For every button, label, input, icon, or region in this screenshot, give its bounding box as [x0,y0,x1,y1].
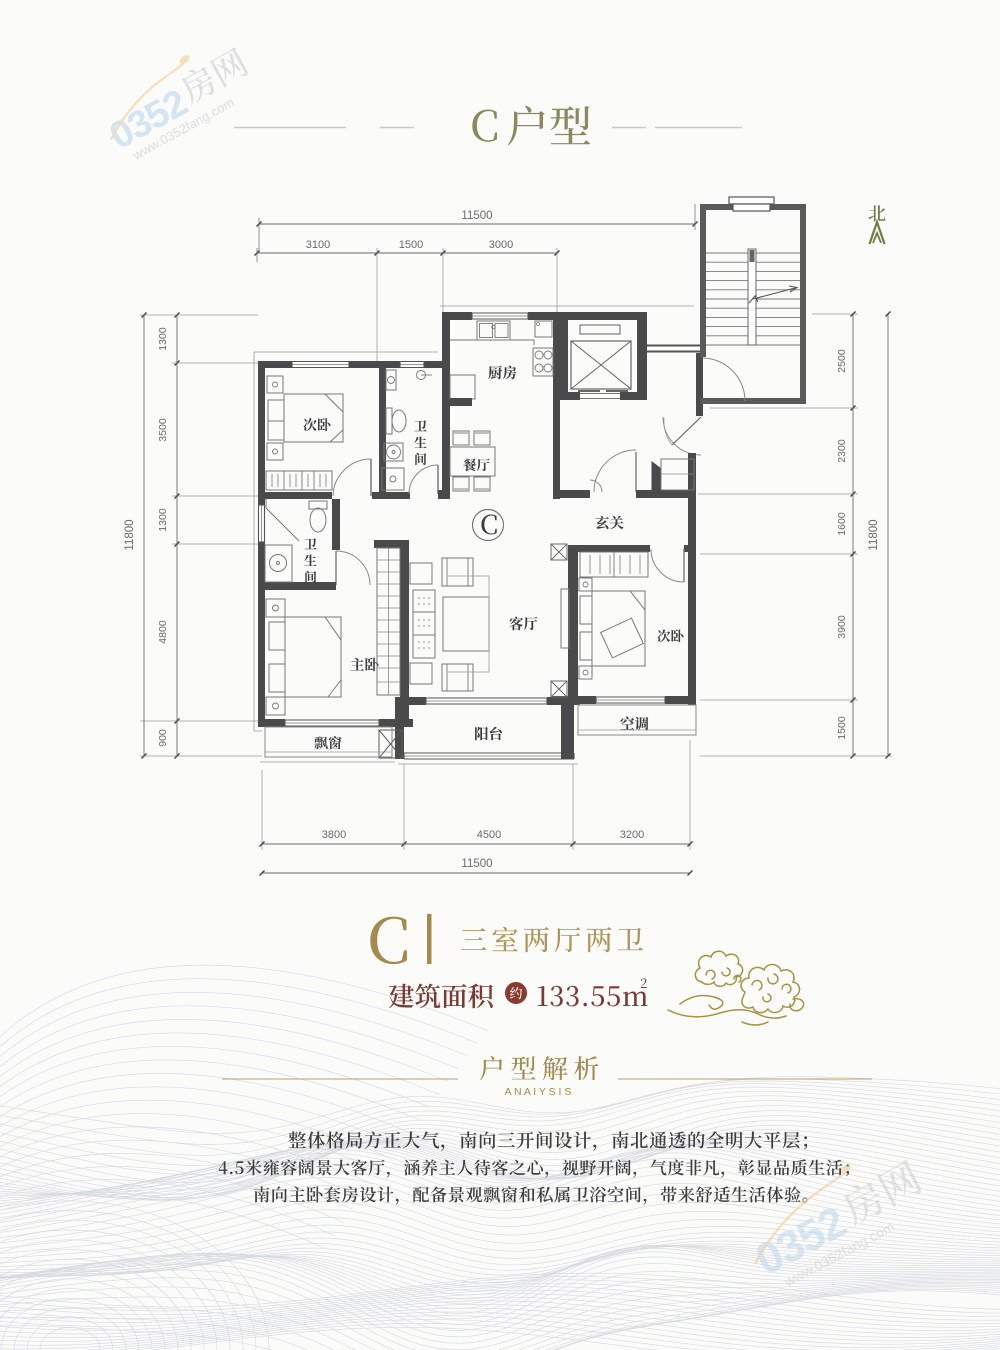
svg-text:3100: 3100 [306,239,330,251]
svg-text:3200: 3200 [620,829,644,841]
svg-text:3000: 3000 [489,239,513,251]
svg-text:1300: 1300 [157,327,169,351]
svg-text:3500: 3500 [157,418,169,442]
svg-text:A N A I Y S I S: A N A I Y S I S [505,1086,572,1098]
svg-text:1500: 1500 [836,716,848,740]
svg-text:11800: 11800 [124,519,136,550]
svg-text:2300: 2300 [836,439,848,463]
svg-text:1500: 1500 [399,239,423,251]
svg-text:3900: 3900 [836,615,848,639]
svg-text:2500: 2500 [836,349,848,373]
svg-text:900: 900 [157,729,169,747]
svg-text:4800: 4800 [157,620,169,644]
svg-text:11500: 11500 [461,210,492,222]
svg-text:11500: 11500 [461,858,492,870]
svg-text:3800: 3800 [322,829,346,841]
svg-text:4500: 4500 [477,829,501,841]
svg-text:11800: 11800 [868,519,880,550]
svg-text:1600: 1600 [836,512,848,536]
svg-text:1300: 1300 [157,508,169,532]
